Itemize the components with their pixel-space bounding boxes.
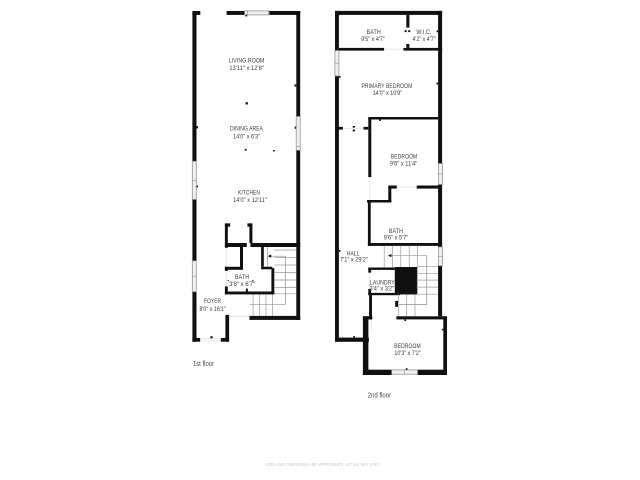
- svg-text:2nd floor: 2nd floor: [368, 391, 392, 400]
- svg-text:9'6" x 11'4": 9'6" x 11'4": [390, 161, 417, 167]
- svg-text:FOYER: FOYER: [204, 299, 221, 305]
- svg-text:9'6" x 5'7": 9'6" x 5'7": [384, 235, 408, 241]
- svg-text:DINING AREA: DINING AREA: [230, 127, 263, 133]
- svg-text:BEDROOM: BEDROOM: [394, 344, 420, 350]
- svg-text:3'8" x 6'7": 3'8" x 6'7": [229, 282, 255, 288]
- svg-text:SIZES AND DIMENSIONS ARE APPRO: SIZES AND DIMENSIONS ARE APPROXIMATE. AC…: [265, 462, 379, 467]
- svg-text:14'0" x 10'9": 14'0" x 10'9": [373, 91, 402, 97]
- svg-text:14'0" x 6'3": 14'0" x 6'3": [233, 134, 260, 140]
- svg-text:8'0" x 16'1": 8'0" x 16'1": [199, 307, 225, 313]
- svg-text:BATH: BATH: [235, 275, 249, 281]
- svg-text:PRIMARY BEDROOM: PRIMARY BEDROOM: [362, 84, 413, 90]
- svg-text:KITCHEN: KITCHEN: [238, 190, 260, 196]
- svg-text:3'4" x 3'2": 3'4" x 3'2": [370, 287, 395, 293]
- svg-text:14'0" x 12'11": 14'0" x 12'11": [233, 198, 267, 204]
- svg-text:13'11" x 12'8": 13'11" x 12'8": [229, 66, 264, 72]
- svg-text:BATH: BATH: [389, 229, 403, 235]
- svg-text:10'3" x 7'2": 10'3" x 7'2": [394, 351, 420, 357]
- svg-text:LAUNDRY: LAUNDRY: [370, 280, 395, 286]
- svg-text:7'1" x 29'2": 7'1" x 29'2": [340, 257, 368, 263]
- svg-text:LIVING ROOM: LIVING ROOM: [229, 58, 265, 64]
- svg-text:BEDROOM: BEDROOM: [391, 154, 417, 160]
- svg-text:4'2" x 4'7": 4'2" x 4'7": [412, 37, 435, 43]
- svg-text:W.I.C.: W.I.C.: [416, 30, 432, 36]
- svg-text:BATH: BATH: [367, 30, 381, 36]
- svg-text:1st floor: 1st floor: [193, 359, 215, 368]
- svg-text:9'5" x 4'7": 9'5" x 4'7": [361, 37, 384, 43]
